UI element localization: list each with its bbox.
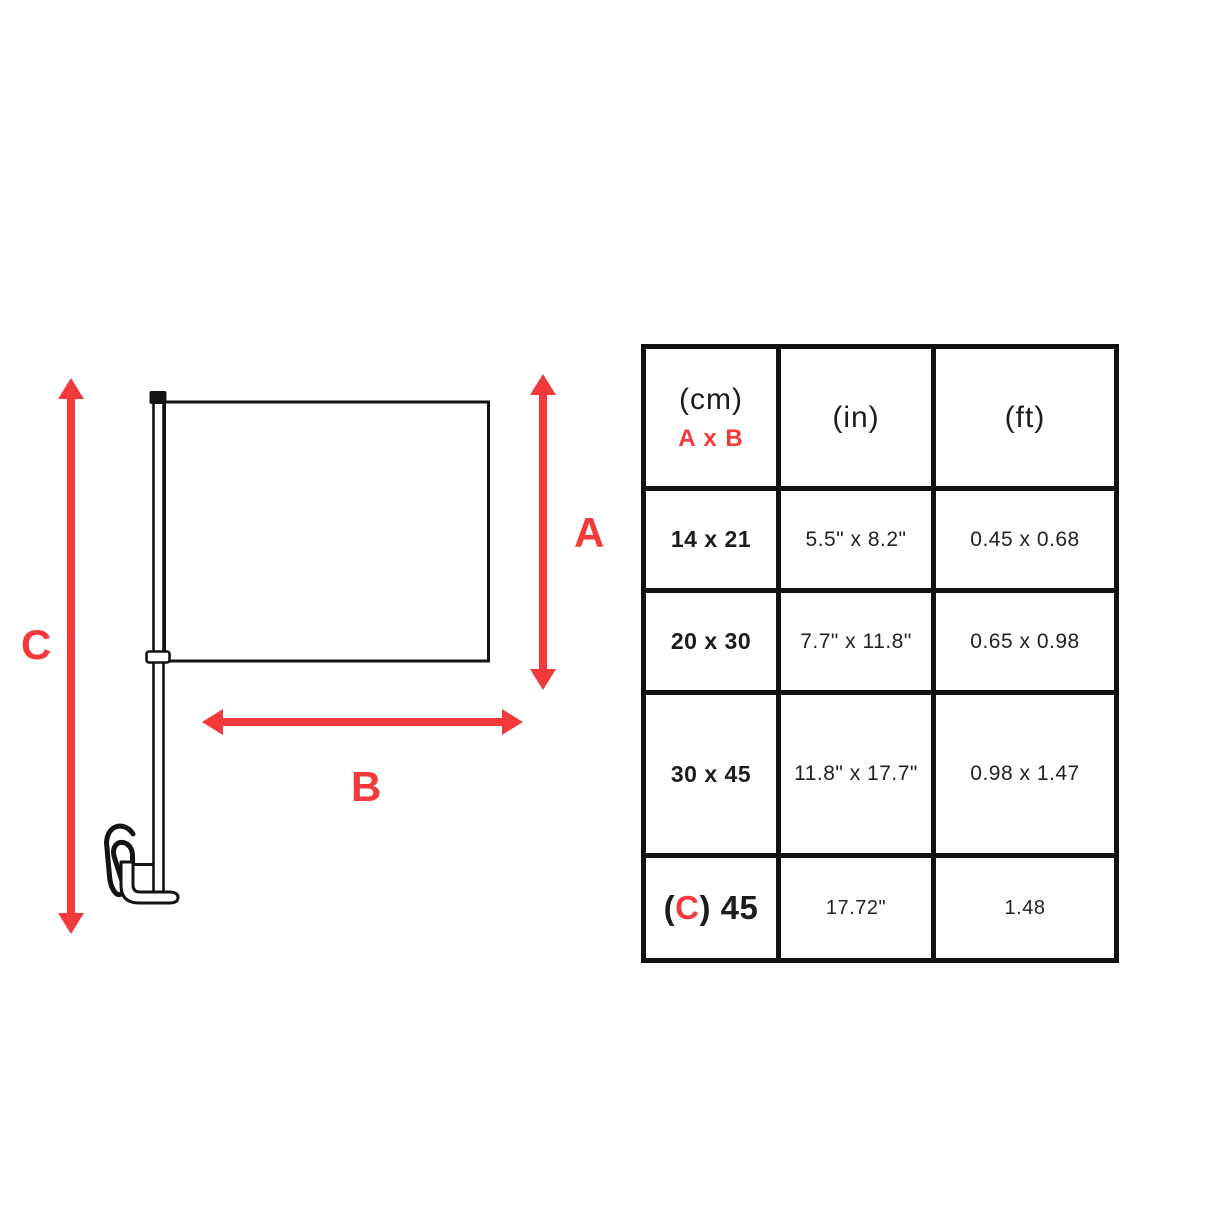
table-row: 7.7" x 11.8"	[781, 593, 931, 690]
table-row: 5.5" x 8.2"	[781, 491, 931, 588]
table-row: 17.72"	[781, 858, 931, 958]
pole-length-cm-value: (C) 45	[664, 889, 759, 927]
table-row: 20 x 30	[646, 593, 776, 690]
header-in-unit: (in)	[832, 401, 879, 435]
dimension-label-a: A	[574, 512, 605, 554]
table-row: 11.8" x 17.7"	[781, 695, 931, 853]
c-dimension-ref: C	[675, 889, 699, 926]
paren-open: (	[664, 889, 676, 926]
header-ft-unit: (ft)	[1005, 401, 1046, 435]
header-axb: A x B	[678, 425, 743, 453]
window-clip-icon	[107, 826, 179, 903]
table-row: 0.45 x 0.68	[936, 491, 1114, 588]
dimension-arrow-b-icon	[202, 709, 523, 735]
size-in-value: 7.7" x 11.8"	[800, 630, 912, 654]
table-row: 30 x 45	[646, 695, 776, 853]
dimension-label-b: B	[351, 766, 382, 808]
size-cm-value: 30 x 45	[671, 761, 751, 788]
pole-cap	[150, 391, 167, 404]
table-header-cm: (cm) A x B	[646, 349, 776, 486]
size-ft-value: 0.45 x 0.68	[970, 528, 1079, 552]
size-ft-value: 0.98 x 1.47	[970, 762, 1079, 786]
table-row: 0.65 x 0.98	[936, 593, 1114, 690]
pole-collar	[147, 652, 170, 663]
table-row: 1.48	[936, 858, 1114, 958]
size-in-value: 11.8" x 17.7"	[794, 762, 918, 786]
size-cm-value: 20 x 30	[671, 628, 751, 655]
pole-length-in-value: 17.72"	[826, 897, 886, 920]
table-row: 0.98 x 1.47	[936, 695, 1114, 853]
paren-close-and-value: ) 45	[699, 889, 758, 926]
page: A B C (cm) A x B (in) (ft) 14 x 21 5.5" …	[0, 0, 1214, 1214]
flag-pole	[154, 396, 164, 897]
dimension-label-c: C	[21, 624, 52, 666]
table-row: (C) 45	[646, 858, 776, 958]
header-cm-unit: (cm)	[679, 383, 743, 417]
dimension-arrow-a-icon	[530, 374, 556, 690]
size-in-value: 5.5" x 8.2"	[806, 528, 907, 552]
size-ft-value: 0.65 x 0.98	[970, 630, 1079, 654]
table-header-in: (in)	[781, 349, 931, 486]
size-cm-value: 14 x 21	[671, 526, 751, 553]
size-table: (cm) A x B (in) (ft) 14 x 21 5.5" x 8.2"…	[641, 344, 1119, 963]
pole-length-ft-value: 1.48	[1005, 897, 1046, 920]
table-row: 14 x 21	[646, 491, 776, 588]
table-header-ft: (ft)	[936, 349, 1114, 486]
flag-panel	[165, 402, 489, 661]
dimension-arrow-c-icon	[58, 378, 84, 934]
